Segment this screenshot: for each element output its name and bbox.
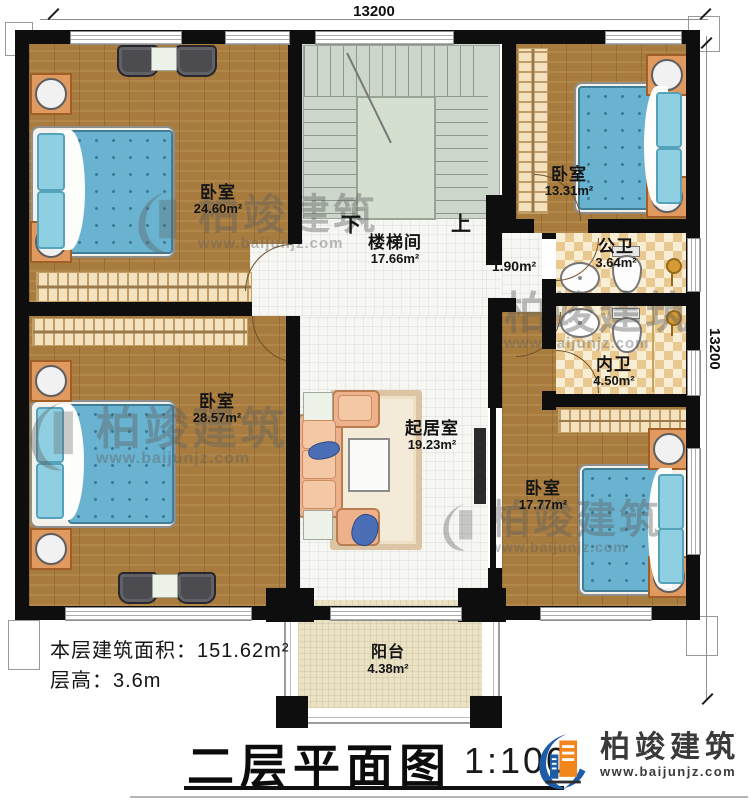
- room-label-bedroom-tl: 卧室 24.60m²: [194, 183, 242, 217]
- shower-head: [666, 310, 682, 326]
- pillow: [37, 133, 65, 191]
- side-table: [303, 392, 333, 422]
- brand-logo: 柏竣建筑 www.baijunjz.com: [536, 732, 740, 790]
- sofa-cushion: [302, 480, 336, 509]
- dimension-corner-box: [686, 616, 718, 656]
- room-area: 19.23m²: [405, 438, 459, 453]
- shower-head: [666, 258, 682, 274]
- room-name: 阳台: [367, 644, 408, 662]
- wall-segment: [542, 233, 556, 239]
- room-label-bedroom-bl: 卧室 28.57m²: [193, 392, 241, 426]
- wall-segment: [488, 298, 516, 312]
- room-label-living: 起居室 19.23m²: [405, 419, 459, 453]
- room-name: 公卫: [595, 237, 636, 256]
- wall-segment: [490, 408, 496, 568]
- side-table: [152, 574, 178, 598]
- room-label-bedroom-br: 卧室 17.77m²: [519, 479, 567, 513]
- wall-segment: [15, 30, 29, 620]
- nightstand: [30, 528, 72, 570]
- side-table: [151, 47, 177, 71]
- room-name: 卧室: [194, 183, 242, 202]
- chair: [176, 572, 216, 604]
- room-name: 卧室: [193, 392, 241, 411]
- dimension-top-label: 13200: [353, 3, 395, 20]
- room-name: 卧室: [519, 479, 567, 498]
- room-area: 17.77m²: [519, 498, 567, 513]
- room-area: 1.90m²: [492, 259, 536, 275]
- pillow: [658, 528, 684, 584]
- stair-down-label: 下: [341, 209, 361, 238]
- room-name: 起居室: [405, 419, 459, 438]
- wall-segment: [516, 219, 534, 233]
- window: [70, 31, 182, 45]
- balcony-door: [330, 607, 462, 621]
- room-label-public-bath: 公卫 3.64m²: [595, 237, 636, 271]
- wall-segment: [542, 394, 700, 407]
- window: [225, 31, 290, 45]
- floor-area-text: 本层建筑面积：151.62m²: [50, 634, 290, 663]
- brand-url: www.baijunjz.com: [600, 764, 740, 779]
- wardrobe: [32, 318, 248, 346]
- balcony-column: [458, 588, 506, 622]
- wall-segment: [542, 293, 700, 306]
- floor-height-text: 层高：3.6m: [50, 664, 161, 693]
- room-label-stairwell: 楼梯间 17.66m²: [368, 233, 422, 267]
- balcony-column: [470, 696, 502, 728]
- room-area: 24.60m²: [194, 202, 242, 217]
- pillow: [658, 474, 684, 530]
- room-name: 楼梯间: [368, 233, 422, 252]
- room-label-bedroom-tr: 卧室 13.31m²: [545, 165, 593, 199]
- stairwell-outline: [303, 45, 500, 219]
- pillow: [36, 463, 64, 519]
- room-area: 13.31m²: [545, 184, 593, 199]
- pillow: [656, 92, 682, 148]
- side-table: [303, 510, 333, 540]
- pillow: [36, 407, 64, 463]
- window: [315, 31, 454, 45]
- room-area: 4.50m²: [593, 374, 634, 389]
- wall-segment: [15, 302, 252, 316]
- wall-segment: [286, 316, 300, 606]
- room-label-balcony: 阳台 4.38m²: [367, 644, 408, 676]
- nightstand: [30, 73, 72, 115]
- coffee-table: [348, 438, 390, 492]
- window: [687, 448, 701, 555]
- window: [605, 31, 682, 45]
- room-area: 4.38m²: [367, 662, 408, 677]
- room-label-hallway: 1.90m²: [492, 259, 536, 275]
- window: [687, 238, 701, 292]
- wall-segment: [488, 312, 502, 408]
- window: [65, 607, 252, 621]
- nightstand: [648, 428, 690, 470]
- wall-segment: [486, 195, 502, 265]
- room-name: 内卫: [593, 355, 634, 374]
- room-area: 3.64m²: [595, 256, 636, 271]
- balcony-column: [276, 696, 308, 728]
- pillow: [656, 148, 682, 204]
- dimension-tick: [701, 693, 713, 705]
- window: [540, 607, 652, 621]
- balcony-column: [266, 588, 314, 622]
- brand-logo-icon: [536, 732, 592, 790]
- tv: [474, 428, 486, 504]
- stair-up-label: 上: [451, 208, 471, 237]
- chair: [175, 45, 217, 77]
- window: [687, 350, 701, 396]
- wall-segment: [288, 44, 302, 244]
- bath-divider: [652, 306, 654, 392]
- title-underline-thin: [130, 796, 748, 798]
- wall-segment: [502, 44, 516, 233]
- room-area: 17.66m²: [368, 252, 422, 267]
- wall-segment: [542, 279, 556, 349]
- room-name: 卧室: [545, 165, 593, 184]
- wardrobe: [36, 272, 252, 302]
- floorplan-page: 13200 13200 柏竣建筑 www.baijunjz.com: [0, 0, 750, 802]
- room-area: 28.57m²: [193, 411, 241, 426]
- room-label-private-bath: 内卫 4.50m²: [593, 355, 634, 389]
- title-underline: [184, 786, 564, 790]
- armchair-cushion: [338, 395, 372, 421]
- nightstand: [30, 360, 72, 402]
- sink: [560, 308, 600, 338]
- dimension-corner-box: [8, 620, 40, 670]
- dimension-right-label: 13200: [706, 328, 723, 370]
- wall-segment: [588, 219, 700, 233]
- pillow: [37, 191, 65, 249]
- brand-name: 柏竣建筑: [600, 732, 740, 764]
